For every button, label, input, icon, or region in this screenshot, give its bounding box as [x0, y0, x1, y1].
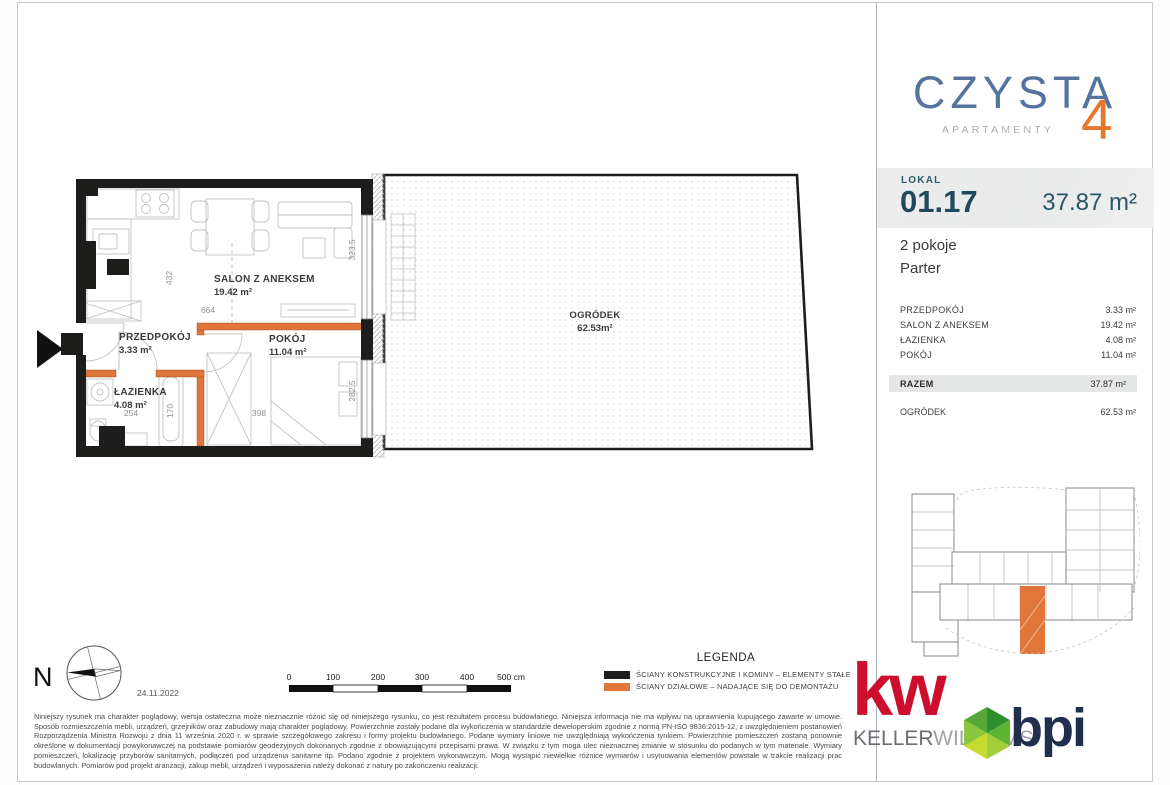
row-value: 11.04 m²	[1101, 348, 1136, 363]
dim-282-5: 282.5	[347, 380, 357, 402]
building-site-plan	[894, 480, 1140, 674]
total-label: RAZEM	[900, 379, 934, 389]
dim-398: 398	[252, 408, 266, 418]
room-label-lazienka: ŁAZIENKA	[114, 387, 167, 398]
window-spec-tag	[373, 220, 386, 314]
scale-tick-300: 300	[415, 672, 429, 682]
table-row: POKÓJ 11.04 m²	[900, 348, 1136, 363]
row-value: 3.33 m²	[1105, 303, 1136, 318]
plan-date: 24.11.2022	[137, 688, 179, 698]
legend-swatch-black	[604, 671, 630, 679]
room-area-pokoj: 11.04 m²	[269, 347, 307, 358]
unit-number: 01.17	[900, 184, 978, 220]
floor-plan: SALON Z ANEKSEM 19.42 m² PRZEDPOKÓJ 3.33…	[31, 161, 861, 491]
legend-label-partition: ŚCIANY DZIAŁOWE – NADAJĄCE SIĘ DO DEMONT…	[636, 682, 839, 691]
legend-item-structural: ŚCIANY KONSTRUKCYJNE I KOMINY – ELEMENTY…	[604, 670, 866, 679]
north-label: N	[33, 662, 53, 692]
table-row: PRZEDPOKÓJ 3.33 m²	[900, 303, 1136, 318]
entrance-arrow	[37, 330, 63, 368]
garden-row: OGRÓDEK 62.53 m²	[900, 407, 1136, 417]
garden-label: OGRÓDEK	[569, 309, 620, 321]
garden-row-label: OGRÓDEK	[900, 407, 946, 417]
row-value: 4.08 m²	[1105, 333, 1136, 348]
room-table: PRZEDPOKÓJ 3.33 m² SALON Z ANEKSEM 19.42…	[900, 303, 1136, 363]
row-label: POKÓJ	[900, 348, 932, 363]
row-label: PRZEDPOKÓJ	[900, 303, 964, 318]
room-area-przedpokoj: 3.33 m²	[119, 345, 152, 356]
room-area-salon: 19.42 m²	[214, 287, 252, 298]
row-label: SALON Z ANEKSEM	[900, 318, 989, 333]
dim-323-5: 323.5	[347, 239, 357, 261]
room-label-pokoj: POKÓJ	[269, 332, 306, 345]
dim-664: 664	[201, 305, 215, 315]
dim-254: 254	[124, 408, 138, 418]
dim-170: 170	[165, 404, 175, 418]
dim-432: 432	[164, 271, 174, 285]
legend-swatch-orange	[604, 683, 630, 691]
garden-area-label: 62.53m²	[577, 323, 612, 334]
legend-item-partition: ŚCIANY DZIAŁOWE – NADAJĄCE SIĘ DO DEMONT…	[604, 682, 866, 691]
bpi-logo: bpi	[1010, 701, 1085, 755]
unit-floor: Parter	[900, 260, 941, 277]
legend-label-structural: ŚCIANY KONSTRUKCYJNE I KOMINY – ELEMENTY…	[636, 670, 851, 679]
kitchen-shaft	[107, 259, 129, 275]
legend: LEGENDA ŚCIANY KONSTRUKCYJNE I KOMINY – …	[586, 652, 866, 694]
scale-tick-400: 400	[460, 672, 474, 682]
scale-bar: 0 100 200 300 400 500 cm	[283, 666, 533, 700]
window-spec-tag	[373, 363, 386, 435]
compass-needle	[61, 640, 126, 705]
scale-tick-200: 200	[371, 672, 385, 682]
garden-row-value: 62.53 m²	[1100, 407, 1136, 417]
room-label-przedpokoj: PRZEDPOKÓJ	[119, 330, 191, 343]
bpi-hexagon-icon	[962, 705, 1012, 761]
brand-number: 4	[1081, 87, 1113, 153]
disclaimer-text: Niniejszy rysunek ma charakter poglądowy…	[34, 712, 842, 770]
scale-tick-100: 100	[326, 672, 340, 682]
brand-subtitle: APARTAMENTY	[876, 124, 1154, 136]
room-label-salon: SALON Z ANEKSEM	[214, 274, 315, 285]
row-value: 19.42 m²	[1100, 318, 1136, 333]
legend-title: LEGENDA	[586, 652, 866, 664]
unit-rooms-count: 2 pokoje	[900, 237, 957, 254]
total-value: 37.87 m²	[1090, 379, 1126, 389]
table-row: SALON Z ANEKSEM 19.42 m²	[900, 318, 1136, 333]
scale-tick-500: 500 cm	[497, 672, 525, 682]
table-row: ŁAZIENKA 4.08 m²	[900, 333, 1136, 348]
unit-total-area: 37.87 m²	[1042, 189, 1137, 217]
total-row: RAZEM 37.87 m²	[889, 375, 1137, 392]
scale-tick-0: 0	[287, 672, 292, 682]
unit-header: LOKAL 01.17 37.87 m²	[877, 168, 1154, 228]
kw-logo: kw	[852, 653, 943, 727]
highlighted-unit	[1020, 586, 1045, 654]
compass: N 24.11.2022	[28, 639, 208, 711]
row-label: ŁAZIENKA	[900, 333, 946, 348]
brochure-page: SALON Z ANEKSEM 19.42 m² PRZEDPOKÓJ 3.33…	[17, 2, 1153, 782]
entrance-door-block	[61, 333, 83, 355]
